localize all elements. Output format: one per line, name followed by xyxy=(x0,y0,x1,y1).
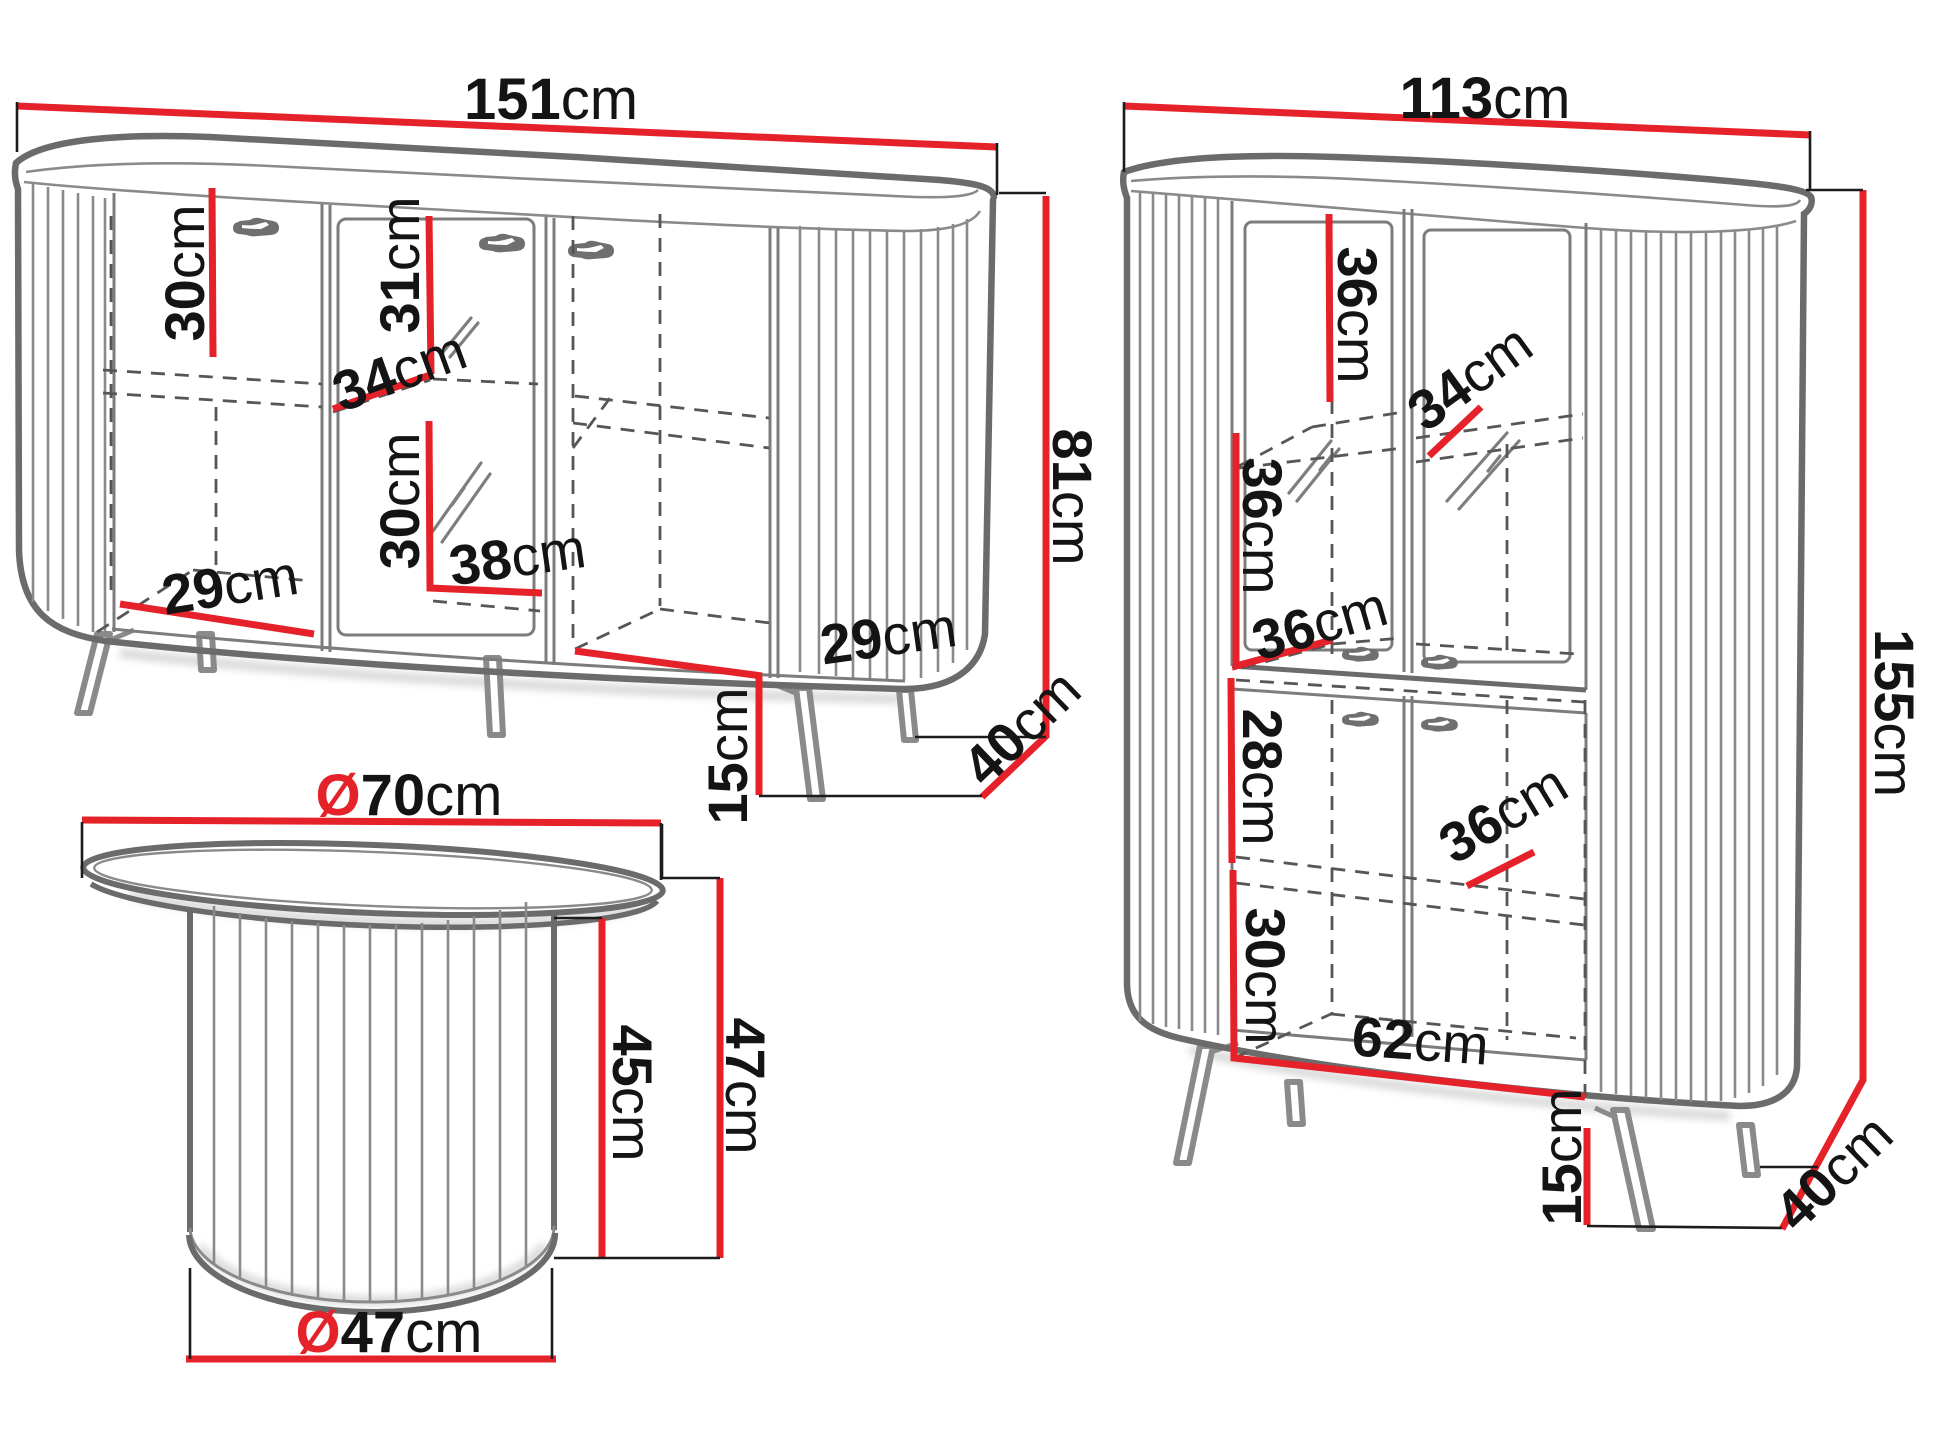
svg-text:30cm: 30cm xyxy=(153,205,216,342)
svg-text:81cm: 81cm xyxy=(1041,429,1104,566)
svg-text:15cm: 15cm xyxy=(1530,1089,1593,1226)
svg-text:30cm: 30cm xyxy=(1234,908,1297,1045)
svg-text:155cm: 155cm xyxy=(1863,629,1926,797)
svg-text:62cm: 62cm xyxy=(1350,1004,1491,1076)
svg-text:45cm: 45cm xyxy=(601,1025,664,1162)
svg-text:29cm: 29cm xyxy=(157,543,302,627)
svg-text:28cm: 28cm xyxy=(1231,709,1294,846)
svg-text:113cm: 113cm xyxy=(1400,66,1571,131)
svg-text:151cm: 151cm xyxy=(464,67,638,132)
svg-text:Ø47cm: Ø47cm xyxy=(296,1300,483,1365)
svg-text:38cm: 38cm xyxy=(445,516,589,597)
svg-text:31cm: 31cm xyxy=(368,197,431,334)
svg-text:36cm: 36cm xyxy=(1428,751,1578,876)
svg-text:30cm: 30cm xyxy=(368,433,431,570)
svg-text:36cm: 36cm xyxy=(1326,247,1389,384)
svg-text:47cm: 47cm xyxy=(714,1018,777,1155)
svg-text:15cm: 15cm xyxy=(696,688,759,825)
svg-text:36cm: 36cm xyxy=(1231,458,1294,595)
svg-text:40cm: 40cm xyxy=(950,657,1092,797)
svg-text:Ø70cm: Ø70cm xyxy=(316,763,503,828)
